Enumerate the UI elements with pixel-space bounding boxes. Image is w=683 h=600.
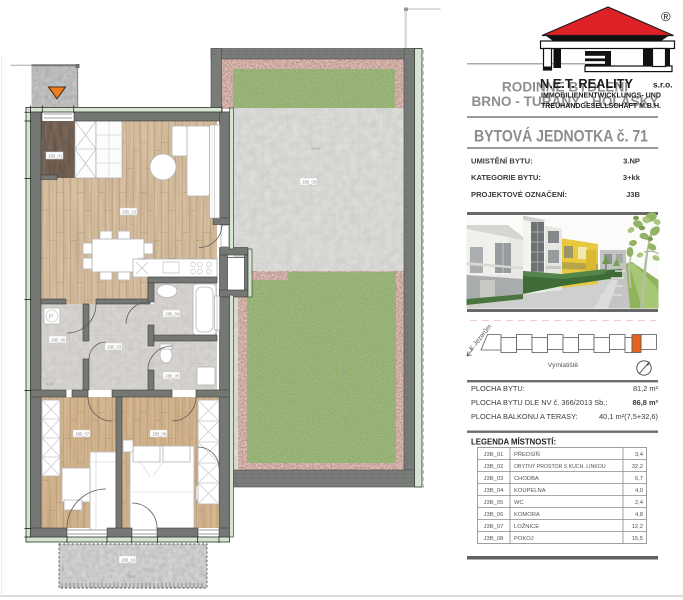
svg-text:3,4: 3,4 xyxy=(635,452,644,458)
svg-text:4,0: 4,0 xyxy=(635,488,643,494)
svg-text:J3B_10: J3B_10 xyxy=(121,558,136,563)
svg-text:TREUHANDGESELLSCHAFT M.B.H.: TREUHANDGESELLSCHAFT M.B.H. xyxy=(541,101,661,110)
svg-text:BYTOVÁ JEDNOTKA č. 71: BYTOVÁ JEDNOTKA č. 71 xyxy=(474,127,648,146)
svg-text:6,7: 6,7 xyxy=(635,476,643,482)
svg-text:0.05: 0.05 xyxy=(46,382,53,386)
svg-text:J3B_05: J3B_05 xyxy=(165,374,180,379)
svg-text:IMMOBILIENENTWICKLUNGS- UND: IMMOBILIENENTWICKLUNGS- UND xyxy=(541,91,661,100)
svg-text:J3B_01: J3B_01 xyxy=(48,154,63,159)
svg-text:15,5: 15,5 xyxy=(632,536,643,542)
svg-text:KOUPELNA: KOUPELNA xyxy=(514,488,546,494)
svg-text:N.E.T. REALITY: N.E.T. REALITY xyxy=(540,76,633,91)
svg-text:1700: 1700 xyxy=(138,257,146,261)
svg-text:P: P xyxy=(49,314,54,321)
svg-text:PLOCHA BYTU:: PLOCHA BYTU: xyxy=(471,384,525,393)
svg-text:J3B_04: J3B_04 xyxy=(165,312,180,317)
svg-text:32,2: 32,2 xyxy=(632,464,643,470)
svg-text:3.NP: 3.NP xyxy=(623,157,640,166)
svg-text:J3B_05: J3B_05 xyxy=(484,500,504,506)
svg-text:1000: 1000 xyxy=(61,564,65,572)
svg-text:POKOJ: POKOJ xyxy=(514,536,534,542)
svg-text:LOŽNICE: LOŽNICE xyxy=(514,522,539,530)
svg-text:J3B: J3B xyxy=(626,190,640,199)
svg-text:7500: 7500 xyxy=(127,575,135,579)
svg-text:40,1 m²(7,5+32,6): 40,1 m²(7,5+32,6) xyxy=(599,412,658,421)
svg-text:J3B_07: J3B_07 xyxy=(75,432,90,437)
svg-text:J3B_09: J3B_09 xyxy=(302,180,317,185)
svg-text:PLOCHA BYTU DLE NV č. 366/20: PLOCHA BYTU DLE NV č. 366/2013 Sb.: xyxy=(471,398,607,407)
svg-text:4,8: 4,8 xyxy=(635,512,643,518)
svg-text:86,8 m²: 86,8 m² xyxy=(633,398,659,407)
svg-text:2,4: 2,4 xyxy=(635,500,644,506)
svg-text:J3B_03: J3B_03 xyxy=(107,345,122,350)
svg-text:s.r.o.: s.r.o. xyxy=(653,80,673,90)
svg-text:J3B_08: J3B_08 xyxy=(484,536,504,542)
svg-text:®: ® xyxy=(661,9,671,24)
svg-text:J3B_03: J3B_03 xyxy=(484,476,504,482)
svg-text:WC: WC xyxy=(514,500,524,506)
svg-text:OBYTNÝ PROSTOR S KUCH. LINKOU: OBYTNÝ PROSTOR S KUCH. LINKOU xyxy=(514,463,606,470)
svg-text:PROJEKTOVÉ OZNAČENÍ:: PROJEKTOVÉ OZNAČENÍ: xyxy=(471,190,567,199)
svg-text:J3B_02: J3B_02 xyxy=(484,464,504,470)
svg-text:3+kk: 3+kk xyxy=(623,173,641,182)
svg-text:J3B_01: J3B_01 xyxy=(484,452,504,458)
svg-text:J3B_06: J3B_06 xyxy=(484,512,504,518)
svg-text:J3B_02: J3B_02 xyxy=(122,210,137,215)
svg-text:3540: 3540 xyxy=(341,368,346,378)
svg-text:KOMORA: KOMORA xyxy=(514,512,540,518)
svg-text:J3B_04: J3B_04 xyxy=(484,488,504,494)
svg-text:Výmlatiště: Výmlatiště xyxy=(548,362,579,369)
svg-text:J3B_06: J3B_06 xyxy=(51,338,66,343)
svg-text:LEGENDA MÍSTNOSTÍ:: LEGENDA MÍSTNOSTÍ: xyxy=(471,438,556,447)
svg-text:KATEGORIE BYTU:: KATEGORIE BYTU: xyxy=(471,173,541,182)
svg-text:CHODBA: CHODBA xyxy=(514,476,539,482)
svg-text:4970: 4970 xyxy=(311,146,321,151)
svg-text:PLOCHA BALKONU A TERASY:: PLOCHA BALKONU A TERASY: xyxy=(471,412,578,421)
svg-text:81,2 m²: 81,2 m² xyxy=(633,384,659,393)
svg-text:J3B_07: J3B_07 xyxy=(484,524,504,530)
svg-text:4970: 4970 xyxy=(310,96,320,101)
svg-text:PŘEDSÍŇ: PŘEDSÍŇ xyxy=(514,450,540,458)
svg-text:UMISTĚNÍ BYTU:: UMISTĚNÍ BYTU: xyxy=(471,157,533,166)
svg-text:J3B_08: J3B_08 xyxy=(152,432,167,437)
svg-text:12,2: 12,2 xyxy=(632,524,643,530)
